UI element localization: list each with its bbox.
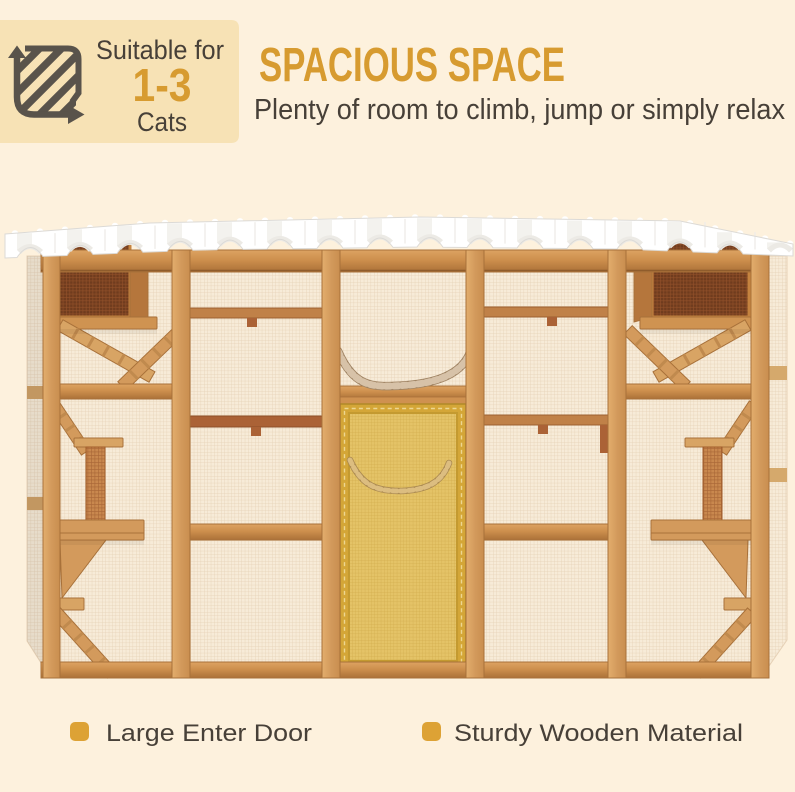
svg-text:SPACIOUS SPACE: SPACIOUS SPACE bbox=[259, 39, 565, 92]
svg-text:Cats: Cats bbox=[137, 107, 187, 137]
svg-text:Large Enter Door: Large Enter Door bbox=[106, 720, 312, 747]
svg-text:Sturdy Wooden Material: Sturdy Wooden Material bbox=[454, 720, 743, 747]
svg-text:1-3: 1-3 bbox=[133, 59, 192, 111]
svg-text:Plenty of room to climb, jump: Plenty of room to climb, jump or simply … bbox=[254, 94, 785, 126]
